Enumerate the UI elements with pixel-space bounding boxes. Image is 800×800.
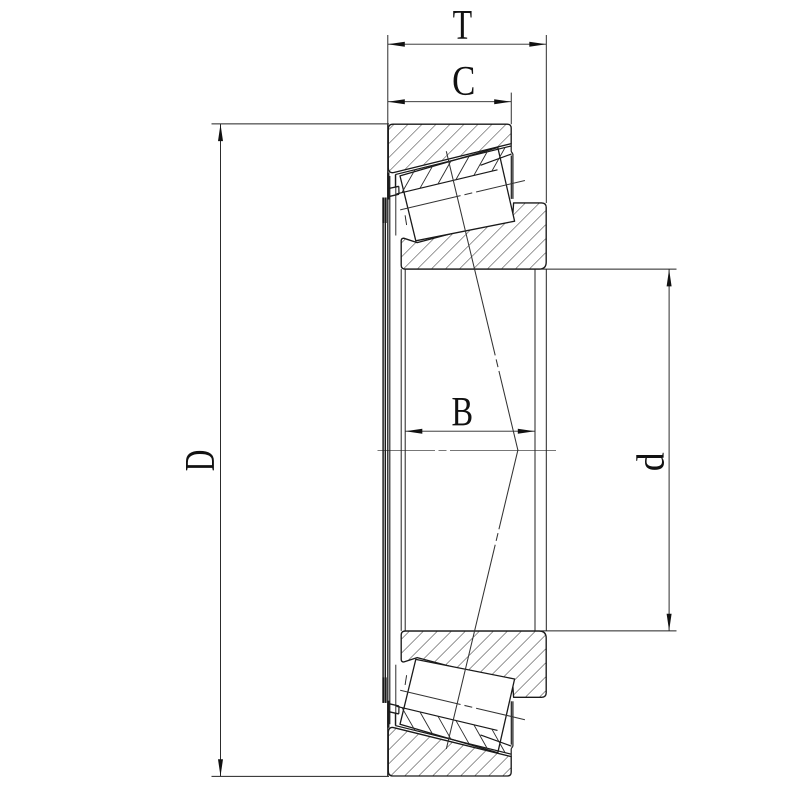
svg-text:B: B [451,388,473,433]
svg-text:d: d [630,452,673,471]
svg-text:D: D [177,450,223,472]
svg-text:C: C [452,59,475,105]
svg-text:T: T [453,3,473,49]
